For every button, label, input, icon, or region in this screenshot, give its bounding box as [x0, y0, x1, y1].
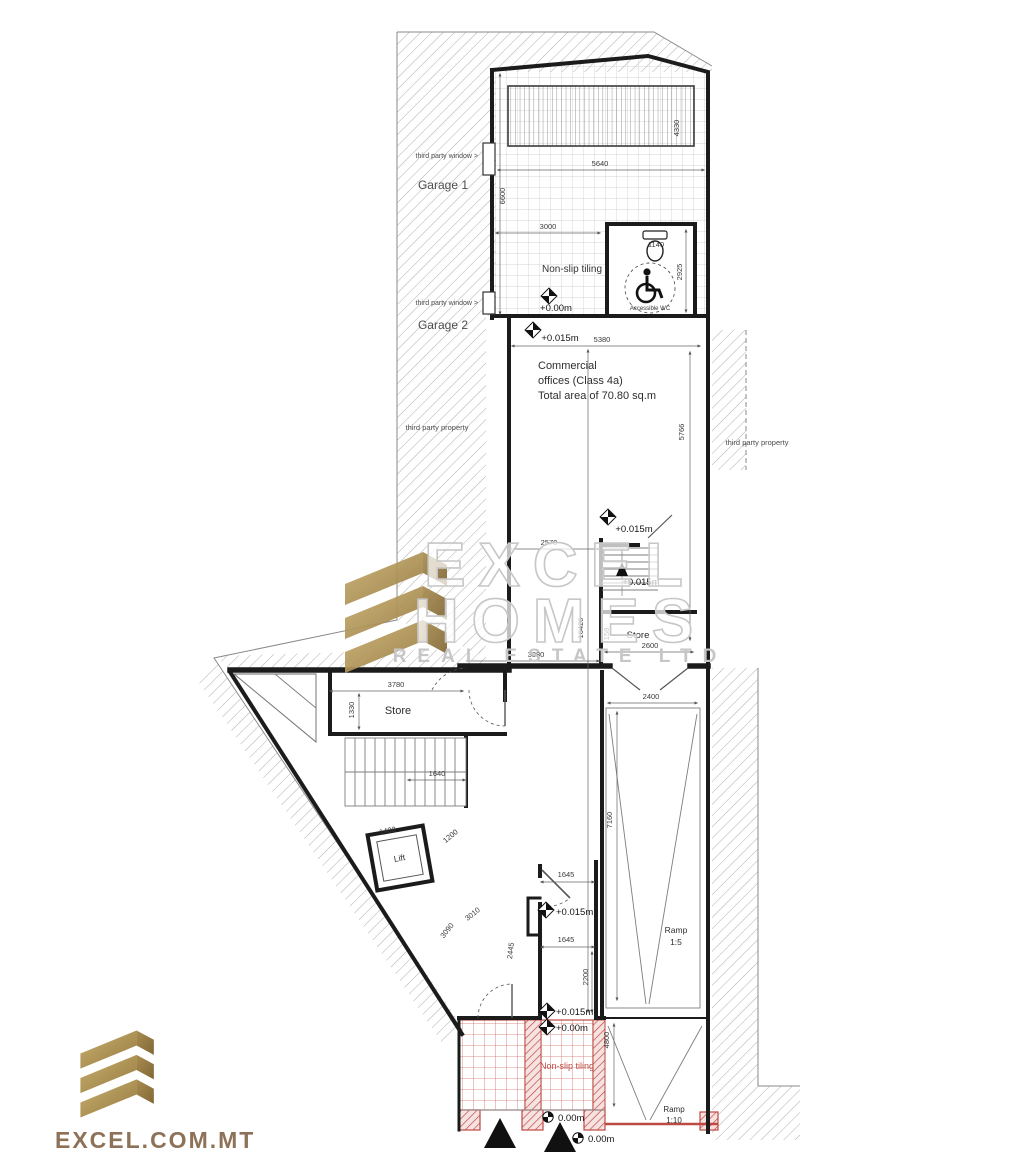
- dim-store-left-width: 3780: [388, 680, 405, 689]
- label-third-party-window-1: third party window >: [416, 153, 478, 160]
- dim-office-height: 5766: [677, 424, 686, 441]
- entrance-pillar: [584, 1110, 605, 1130]
- upper-ramp: [606, 708, 700, 1008]
- label-non-slip-top: Non-slip tiling: [542, 264, 602, 275]
- floor-plan-page: 5640 4330 6600 3000 1140 2925 5380 5766 …: [0, 0, 1024, 1169]
- label-ramp-upper-slope: 1:5: [670, 937, 682, 947]
- level-marker-icon: [543, 1112, 553, 1122]
- entrance-pillar: [522, 1110, 543, 1130]
- label-garage-1: Garage 1: [418, 178, 468, 192]
- entrance-marker-icon: [484, 1118, 516, 1148]
- dim-room-side: 2445: [505, 942, 516, 960]
- level-entry-office: +0.015m: [541, 333, 578, 344]
- toilet-icon: [643, 231, 667, 239]
- entrance-pillar: [459, 1110, 480, 1130]
- dim-ramp-length: 7160: [605, 812, 614, 829]
- label-garage-2: Garage 2: [418, 318, 468, 332]
- dim-top-width: 5640: [592, 159, 609, 168]
- level-corridor: +0.015m: [556, 907, 593, 918]
- window-icon: [483, 143, 495, 175]
- dim-store-left-height: 1330: [347, 702, 356, 719]
- label-ramp-upper: Ramp: [665, 925, 688, 935]
- dim-ramp-width: 2400: [643, 692, 660, 701]
- dim-corridor-bottom: 1645: [558, 935, 575, 944]
- footer-site-text: EXCEL.COM.MT: [55, 1127, 255, 1153]
- level-marker-icon: [525, 322, 541, 338]
- label-non-slip-bottom: Non-slip tiling: [540, 1061, 594, 1071]
- level-marker-icon: [573, 1133, 583, 1143]
- label-third-party-window-2: third party window >: [416, 300, 478, 307]
- label-store-left: Store: [385, 705, 411, 717]
- level-marker-icon: [600, 509, 616, 525]
- dim-corridor-height: 2200: [581, 969, 590, 986]
- label-ramp-lower-slope: 1:10: [666, 1116, 682, 1125]
- dim-room-diag1: 3010: [463, 905, 482, 922]
- footer-brand: EXCEL.COM.MT: [55, 1030, 255, 1153]
- watermark-line3: REAL ESTATE LTD: [393, 646, 728, 667]
- label-accessible-wc: Accessible WC: [630, 306, 671, 312]
- level-street-1: 0.00m: [558, 1113, 584, 1124]
- excel-homes-logo-icon: [80, 1030, 153, 1117]
- dim-wc-fixture: 1140: [648, 240, 664, 249]
- entrance-marker-icon: [544, 1122, 576, 1152]
- label-third-party-property-left: third party property: [406, 423, 469, 432]
- label-commercial-2: offices (Class 4a): [538, 375, 623, 387]
- level-entrance-inner: +0.015m: [556, 1007, 593, 1018]
- dim-wc-height: 2925: [675, 264, 684, 281]
- lower-ramp: [608, 1026, 702, 1120]
- louvre-skylight: [508, 86, 694, 146]
- dim-room-diag2: 3090: [438, 921, 455, 940]
- level-street-2: 0.00m: [588, 1134, 614, 1145]
- label-commercial-1: Commercial: [538, 360, 597, 372]
- dim-garage-depth: 6600: [498, 188, 507, 205]
- dim-entry-width: 5380: [594, 335, 611, 344]
- level-top-landing: +0.00m: [540, 303, 572, 314]
- left-wing-stairs: [345, 738, 466, 806]
- dim-louvre: 4330: [672, 120, 681, 137]
- level-entrance-outer: +0.00m: [556, 1023, 588, 1034]
- dim-corridor-top: 1645: [558, 870, 575, 879]
- dim-entrance-depth: 4800: [602, 1032, 611, 1049]
- label-third-party-property-right: third party property: [726, 438, 789, 447]
- window-icon: [483, 292, 495, 314]
- floor-plan-drawing: 5640 4330 6600 3000 1140 2925 5380 5766 …: [0, 0, 1024, 1169]
- dim-inner-width: 3000: [540, 222, 557, 231]
- dim-stair-width: 1640: [429, 769, 446, 778]
- dim-lift-clear: 1200: [441, 827, 460, 845]
- label-ramp-lower: Ramp: [663, 1105, 685, 1114]
- label-commercial-3: Total area of 70.80 sq.m: [538, 390, 656, 402]
